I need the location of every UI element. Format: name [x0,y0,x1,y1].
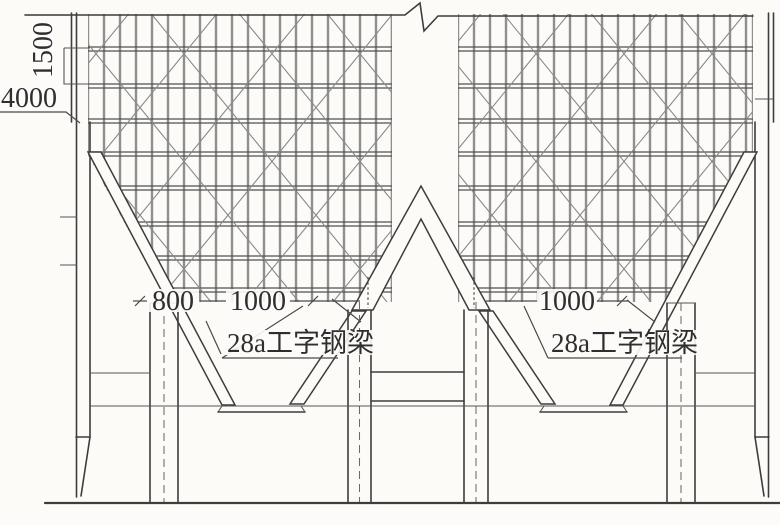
right-wall [755,13,774,497]
grid-line [668,0,780,302]
outlet-end [540,406,544,412]
left-wall-taper [81,437,90,496]
beam-label-right: 28a工字钢梁 [551,328,698,358]
grid-line [580,0,780,302]
dim-text-4000: 4000 [1,83,57,114]
dim-text-1000-left: 1000 [230,286,286,317]
dim-text-800: 800 [152,286,194,317]
beam-label-left: 28a工字钢梁 [227,328,374,358]
right-wall-taper [755,437,764,496]
grid-line [509,0,756,302]
ridge-triangle [352,186,490,310]
beams-and-floor [45,372,780,503]
right-hopper-left-slope [479,311,555,404]
dim-text-1500: 1500 [28,22,59,78]
grid-line [668,0,780,302]
top-boundary [25,3,753,31]
outlet-end [301,406,305,412]
callout-leader-left-2 [206,321,221,354]
dim-leader [627,300,655,322]
grid-line [580,0,780,302]
dim-text-1000-right: 1000 [539,286,595,317]
ridge-outline [352,186,490,310]
top-edge-line [25,3,753,31]
structural-drawing: 1500 4000 800 1000 1000 28a工字钢梁 28a工字钢梁 [0,0,780,525]
drawing-canvas: 1500 4000 800 1000 1000 28a工字钢梁 28a工字钢梁 [0,0,780,525]
outlet-end [218,406,222,412]
outlet-end [623,406,627,412]
left-wall [60,13,90,497]
